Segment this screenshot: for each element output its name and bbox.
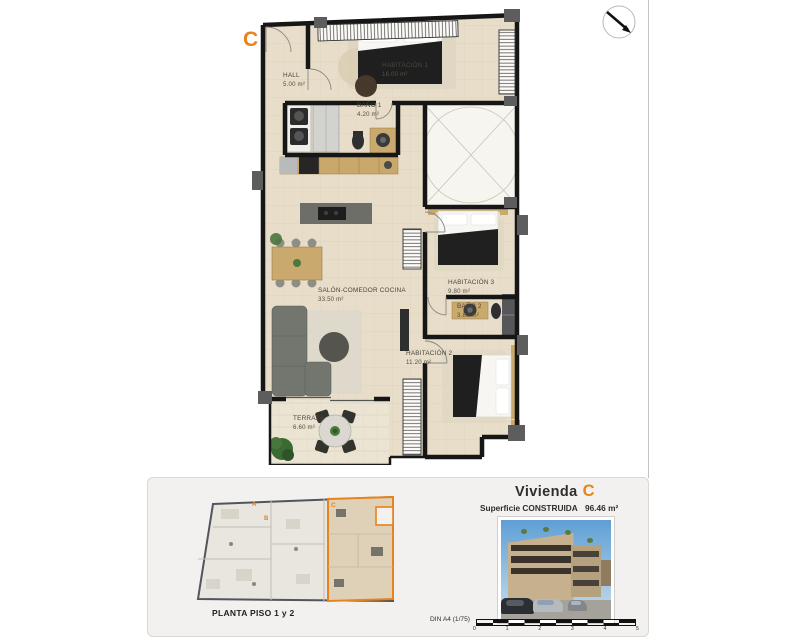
bed-habitacion-3 bbox=[428, 206, 508, 265]
room-name: TERRAZA bbox=[293, 415, 324, 422]
mini-plan-caption: PLANTA PISO 1 y 2 bbox=[212, 608, 295, 618]
scale-bar bbox=[476, 619, 636, 626]
photo-window-band bbox=[511, 545, 571, 551]
room-area: 9.80 m² bbox=[448, 288, 494, 296]
photo-window-band bbox=[511, 568, 571, 574]
scale-format-label: DIN A4 (1/75) bbox=[430, 616, 470, 623]
photo-window-band bbox=[573, 580, 599, 586]
scale-ticks: 0 1 2 3 4 5 bbox=[473, 626, 639, 632]
room-label-habitacion-1: HABITACIÓN 1 16.00 m² bbox=[382, 62, 428, 79]
photo-roof-plant bbox=[543, 527, 549, 532]
room-area: 33.50 m² bbox=[318, 296, 406, 304]
room-area: 16.00 m² bbox=[382, 71, 428, 79]
sheet-margin-line bbox=[648, 0, 649, 478]
room-name: HABITACIÓN 1 bbox=[382, 62, 428, 69]
mini-plan-label-a: A bbox=[252, 502, 257, 508]
scale-tick: 4 bbox=[603, 626, 606, 632]
photo-car-silver bbox=[533, 599, 563, 612]
patio-lightwell bbox=[423, 105, 519, 205]
plant bbox=[270, 233, 282, 245]
room-label-bano-2: BAÑO 2 3.80 m² bbox=[457, 303, 482, 320]
coffee-table bbox=[319, 332, 349, 362]
kitchen-island bbox=[300, 203, 372, 224]
photo-window-band bbox=[511, 556, 571, 562]
room-area: 4.20 m² bbox=[357, 111, 382, 119]
photo-car-window bbox=[537, 600, 553, 605]
room-area: 11.20 m² bbox=[406, 359, 452, 367]
room-label-hall: HALL 5.00 m² bbox=[283, 72, 305, 89]
room-name: HALL bbox=[283, 72, 300, 79]
building-photo-image bbox=[501, 520, 611, 620]
mini-plan-label-c: C bbox=[331, 502, 336, 509]
bed-habitacion-2 bbox=[453, 345, 520, 428]
room-name: HABITACIÓN 3 bbox=[448, 279, 494, 286]
unit-letter: C bbox=[243, 28, 258, 52]
photo-car-window bbox=[506, 600, 524, 606]
room-name: HABITACIÓN 2 bbox=[406, 350, 452, 357]
vivienda-title-prefix: Vivienda bbox=[515, 484, 578, 500]
vivienda-title: Vivienda C bbox=[470, 482, 640, 501]
photo-roof-plant bbox=[565, 530, 571, 535]
room-name: SALÓN-COMEDOR COCINA bbox=[318, 287, 406, 294]
room-label-terraza: TERRAZA 6.60 m² bbox=[293, 415, 324, 432]
photo-roof-plant bbox=[587, 538, 593, 543]
photo-car-dark bbox=[501, 598, 534, 614]
scale-tick: 2 bbox=[538, 626, 541, 632]
room-label-salon: SALÓN-COMEDOR COCINA 33.50 m² bbox=[318, 287, 406, 304]
floor-plan bbox=[230, 7, 530, 465]
mini-building-plan: A B C bbox=[176, 489, 404, 607]
photo-building-side bbox=[571, 545, 601, 597]
vivienda-title-unit: C bbox=[583, 482, 595, 501]
room-name: BAÑO 2 bbox=[457, 303, 482, 310]
dining-table bbox=[272, 239, 322, 288]
scale-bar-segments bbox=[477, 623, 635, 626]
room-area: 6.60 m² bbox=[293, 424, 324, 432]
scale-tick: 5 bbox=[636, 626, 639, 632]
mini-plan-label-b: B bbox=[264, 516, 269, 522]
tv-unit bbox=[400, 309, 409, 351]
building-photo bbox=[497, 516, 615, 624]
kitchen-counter bbox=[280, 157, 398, 174]
armchair bbox=[355, 75, 377, 97]
room-label-habitacion-3: HABITACIÓN 3 9.80 m² bbox=[448, 279, 494, 296]
photo-roof-plant bbox=[521, 529, 527, 534]
room-label-habitacion-2: HABITACIÓN 2 11.20 m² bbox=[406, 350, 452, 367]
photo-window-band bbox=[573, 551, 599, 557]
photo-car-window bbox=[571, 601, 581, 605]
photo-window-band bbox=[573, 566, 599, 572]
surface-label: Superficie CONSTRUIDA bbox=[480, 503, 578, 513]
scale-tick: 0 bbox=[473, 626, 476, 632]
room-label-bano-1: BAÑO 1 4.20 m² bbox=[357, 102, 382, 119]
mini-plan-notch bbox=[376, 507, 393, 525]
scale-tick: 1 bbox=[506, 626, 509, 632]
surface-value: 96.46 m² bbox=[585, 503, 618, 513]
room-area: 3.80 m² bbox=[457, 312, 482, 320]
photo-building-front bbox=[508, 533, 574, 602]
room-name: BAÑO 1 bbox=[357, 102, 382, 109]
scale-tick: 3 bbox=[571, 626, 574, 632]
room-area: 5.00 m² bbox=[283, 81, 305, 89]
photo-car-gray bbox=[568, 600, 587, 611]
north-arrow-icon bbox=[598, 4, 640, 46]
